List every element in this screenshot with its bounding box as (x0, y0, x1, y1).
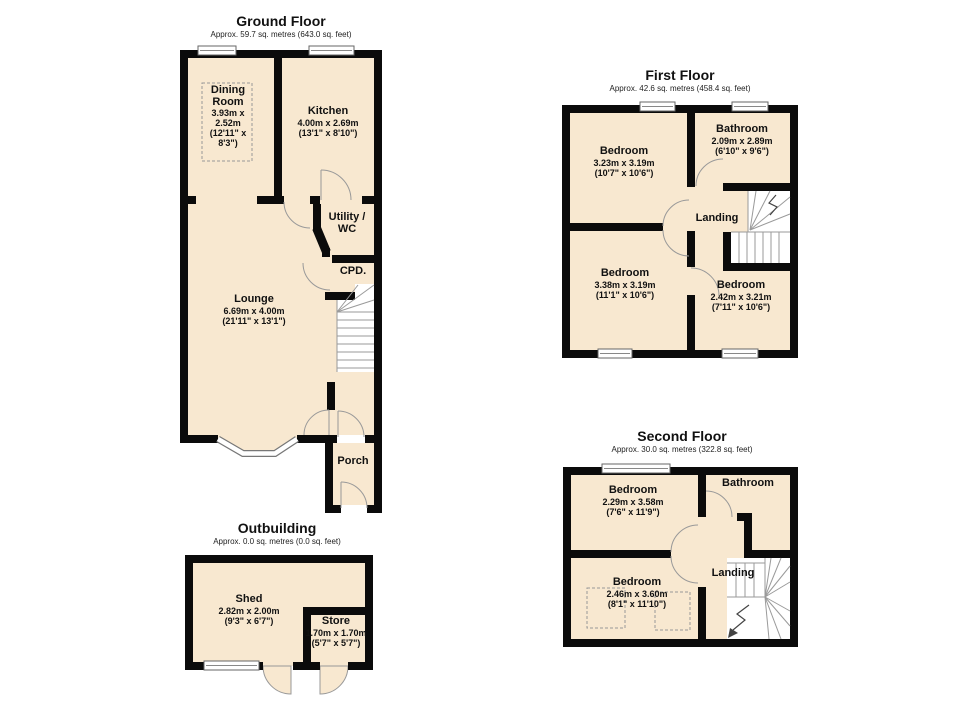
room-label-shed: Shed 2.82m x 2.00m (9'3" x 6'7") (218, 594, 279, 626)
room-label-bedroom-5: Bedroom 2.46m x 3.60m (8'1" x 11'10") (606, 577, 667, 609)
room-label-bathroom-2: Bathroom (722, 478, 774, 490)
outbuilding-windows (204, 661, 259, 670)
floor-subtitle-outbuilding: Approx. 0.0 sq. metres (0.0 sq. feet) (213, 537, 341, 546)
door-arc (320, 666, 348, 694)
floor-title-outbuilding: Outbuilding (238, 520, 317, 536)
room-label-cpd: CPD. (340, 266, 366, 278)
room-label-bedroom-1: Bedroom 3.23m x 3.19m (10'7" x 10'6") (593, 146, 654, 178)
second-floor-windows (602, 464, 670, 473)
floor-title-first: First Floor (645, 67, 714, 83)
floor-title-ground: Ground Floor (236, 13, 325, 29)
room-label-store: Store 1.70m x 1.70m (5'7" x 5'7") (305, 616, 366, 648)
room-label-dining-room: Dining Room 3.93m x 2.52m (12'11" x 8'3"… (202, 85, 254, 148)
floor-subtitle-ground: Approx. 59.7 sq. metres (643.0 sq. feet) (211, 30, 352, 39)
door-arc (263, 666, 291, 694)
room-label-landing-2: Landing (712, 568, 755, 580)
room-label-porch: Porch (337, 456, 368, 468)
floor-subtitle-first: Approx. 42.6 sq. metres (458.4 sq. feet) (610, 84, 751, 93)
floor-title-second: Second Floor (637, 428, 726, 444)
room-label-kitchen: Kitchen 4.00m x 2.69m (13'1" x 8'10") (297, 106, 358, 138)
floorplan-page: Ground Floor Approx. 59.7 sq. metres (64… (0, 0, 980, 712)
floor-subtitle-second: Approx. 30.0 sq. metres (322.8 sq. feet) (612, 445, 753, 454)
floorplan-geometry (0, 0, 980, 712)
room-label-landing-1: Landing (696, 213, 739, 225)
second-floor-plan (563, 464, 798, 647)
room-label-lounge: Lounge 6.69m x 4.00m (21'11" x 13'1") (222, 294, 285, 326)
outbuilding-doors (263, 666, 348, 694)
room-label-utility-wc: Utility / WC (319, 212, 375, 235)
room-label-bathroom-1: Bathroom 2.09m x 2.89m (6'10" x 9'6") (711, 124, 772, 156)
room-label-bedroom-4: Bedroom 2.29m x 3.58m (7'6" x 11'9") (602, 485, 663, 517)
room-label-bedroom-2: Bedroom 3.38m x 3.19m (11'1" x 10'6") (594, 268, 655, 300)
room-label-bedroom-3: Bedroom 2.42m x 3.21m (7'11" x 10'6") (710, 280, 771, 312)
